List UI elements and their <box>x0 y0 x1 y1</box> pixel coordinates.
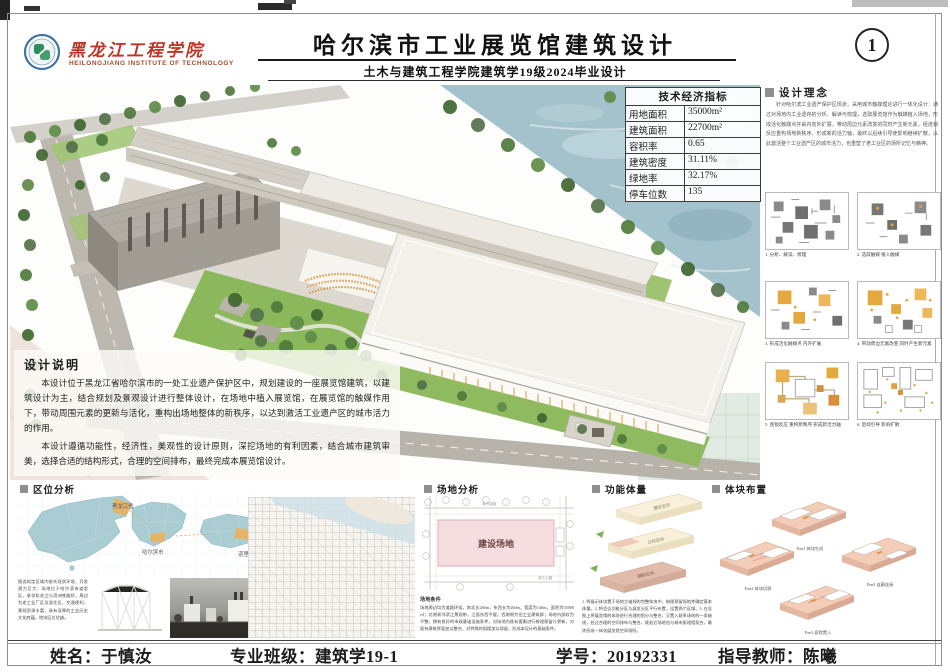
design-description-title: 设计说明 <box>24 356 390 373</box>
concept-caption-1: 1. 分析、解读、梳理 <box>765 252 851 258</box>
footer-class-label: 专业班级： <box>230 647 315 666</box>
design-description-panel: 设计说明 本设计位于黑龙江省哈尔滨市的一处工业遗产保护区中，规划建设的一座展览馆… <box>14 350 400 476</box>
indicator-value: 0.65 <box>685 138 760 153</box>
indicator-label: 绿地率 <box>626 170 685 185</box>
title-rule <box>258 59 736 61</box>
indicator-row: 建筑面积22700m² <box>626 122 760 138</box>
scan-artifact <box>852 0 948 7</box>
massing-header: 体块布置 <box>712 482 767 496</box>
indicator-label: 容积率 <box>626 138 685 153</box>
concept-caption-4: 4. 带动周边元素改变 同时产生新元素 <box>857 341 943 347</box>
function-title: 功能体量 <box>605 482 647 496</box>
footer-teacher-label: 指导教师： <box>718 647 803 666</box>
site-plan: 建设场地 城市道路 滨江公路 <box>420 494 576 592</box>
road-label-top: 城市道路 <box>482 501 497 506</box>
concept-diagram-4 <box>857 281 941 339</box>
massing-caption-2: Part2 体块切割 <box>745 585 772 592</box>
concept-diagram-2 <box>857 192 941 250</box>
design-concept-header: 设计理念 <box>765 85 829 100</box>
site-header: 场地分析 <box>424 482 479 496</box>
school-logo: 黑龙江工程学院 HEILONGJIANG INSTITUTE OF TECHNO… <box>22 30 252 82</box>
indicator-row: 容积率0.65 <box>626 138 760 154</box>
indicator-value: 31.11% <box>685 154 760 169</box>
footer-name: 姓名：于慎汝 <box>50 643 152 667</box>
function-header: 功能体量 <box>592 482 647 496</box>
concept-caption-2: 2. 选取触媒 植入触媒 <box>857 252 943 258</box>
massing-caption-1: Part1 体块生成 <box>797 545 824 552</box>
bridge-photo-art <box>92 576 168 638</box>
location-title: 区位分析 <box>33 482 75 496</box>
footer-name-label: 姓名： <box>50 647 101 666</box>
footer-class-value: 建筑学19-1 <box>315 647 398 666</box>
location-maps: 黑龙江省 哈尔滨市 道里区 <box>14 494 266 578</box>
function-massing-diagram: 展览空间 公共空间 辅助空间 <box>582 492 712 594</box>
footer-id: 学号：20192331 <box>556 643 677 667</box>
indicators-table: 技术经济指标 用地面积35000m² 建筑面积22700m² 容积率0.65 建… <box>625 87 761 202</box>
indicators-title: 技术经济指标 <box>626 88 760 106</box>
footer-teacher: 指导教师：陈曦 <box>718 643 837 667</box>
board-subtitle: 土木与建筑工程学院建筑学19级2024毕业设计 <box>250 63 740 80</box>
footer-class: 专业班级：建筑学19-1 <box>230 643 398 667</box>
board-title: 哈尔滨市工业展览馆建筑设计 <box>250 26 740 60</box>
massing-caption-4: Part4 连廊连接 <box>867 581 894 588</box>
indicator-label: 建筑密度 <box>626 154 685 169</box>
indicator-value: 135 <box>685 186 760 201</box>
design-concept-title: 设计理念 <box>779 85 829 100</box>
indicator-label: 停车位数 <box>626 186 685 201</box>
location-note: 图选拟定区域内依托现状环境，开发潜力巨大：场地位于哈尔滨市道里区，紧邻松花江与滨… <box>18 578 88 638</box>
indicator-value: 22700m² <box>685 122 760 137</box>
sheet-number-badge: 1 <box>855 28 889 62</box>
concept-caption-5: 5. 连锁反应 重构新秩序 形成新活力轴 <box>765 422 851 428</box>
indicator-label: 建筑面积 <box>626 122 685 137</box>
massing-layout-diagrams: Part1 体块生成 Part2 体块切割 Part4 连廊连接 Part3 庭… <box>714 492 942 640</box>
section-marker-icon <box>712 485 720 493</box>
map-label-province: 黑龙江省 <box>112 502 134 510</box>
footer-id-label: 学号： <box>556 647 607 666</box>
map-label-city: 哈尔滨市 <box>142 548 164 556</box>
scan-artifact <box>24 6 40 11</box>
section-marker-icon <box>765 88 774 97</box>
indicator-value: 32.17% <box>685 170 760 185</box>
design-concept-text: 针对哈尔滨工业遗产保护区现状，采用城市触媒理论进行一体化设计：通过对场地内工业遗… <box>766 101 938 187</box>
massing-caption-3: Part3 庭院置入 <box>805 629 832 636</box>
school-name: 黑龙江工程学院 <box>68 36 205 61</box>
concept-diagram-5 <box>765 362 849 420</box>
location-header: 区位分析 <box>20 482 75 496</box>
indicator-row: 用地面积35000m² <box>626 106 760 122</box>
section-marker-icon <box>424 485 432 493</box>
site-label: 建设场地 <box>478 538 514 549</box>
site-note: 场地周边均为道路环绕，南北长260m，东西长为260m，宽度为140m，面积为3… <box>420 604 574 640</box>
design-description-paragraph: 本设计位于黑龙江省哈尔滨市的一处工业遗产保护区中，规划建设的一座展览馆建筑，以建… <box>24 376 390 436</box>
indicator-label: 用地面积 <box>626 106 685 121</box>
road-label-right: 滨江公路 <box>538 575 553 580</box>
footer-bar: 姓名：于慎汝 专业班级：建筑学19-1 学号：20192331 指导教师：陈曦 <box>8 640 941 665</box>
school-emblem-icon <box>22 32 62 72</box>
footer-id-value: 20192331 <box>607 647 677 666</box>
indicator-row: 绿地率32.17% <box>626 170 760 186</box>
indicator-value: 35000m² <box>685 106 760 121</box>
scan-artifact <box>284 0 296 4</box>
section-marker-icon <box>20 485 28 493</box>
site-title: 场地分析 <box>437 482 479 496</box>
concept-diagram-3 <box>765 281 849 339</box>
concept-diagram-6 <box>857 362 941 420</box>
function-notes: 1. 将展示体块置于场地主轴线的完整体块中，梳理预留场地并确定基本体量。2. 将… <box>582 598 712 640</box>
indicator-row: 建筑密度31.11% <box>626 154 760 170</box>
section-marker-icon <box>592 485 600 493</box>
massing-title: 体块布置 <box>725 482 767 496</box>
footer-name-value: 于慎汝 <box>101 647 152 666</box>
bridge-photo <box>92 576 168 638</box>
site-note-title: 场地条件 <box>420 596 441 603</box>
design-description-paragraph: 本设计遵循功能性，经济性，美观性的设计原则，深挖场地的有利因素，结合城市建筑审美… <box>24 439 390 469</box>
footer-teacher-value: 陈曦 <box>803 647 837 666</box>
indicator-row: 停车位数135 <box>626 186 760 201</box>
concept-diagram-1 <box>765 192 849 250</box>
subtitle-rule <box>268 80 720 81</box>
school-name-en: HEILONGJIANG INSTITUTE OF TECHNOLOGY <box>69 60 234 67</box>
scan-artifact <box>258 3 292 10</box>
concept-caption-3: 3. 形成活化触媒点 内外扩展 <box>765 341 851 347</box>
concept-caption-6: 6. 后续引导 影响扩散 <box>857 422 943 428</box>
city-map-texture <box>248 497 415 638</box>
